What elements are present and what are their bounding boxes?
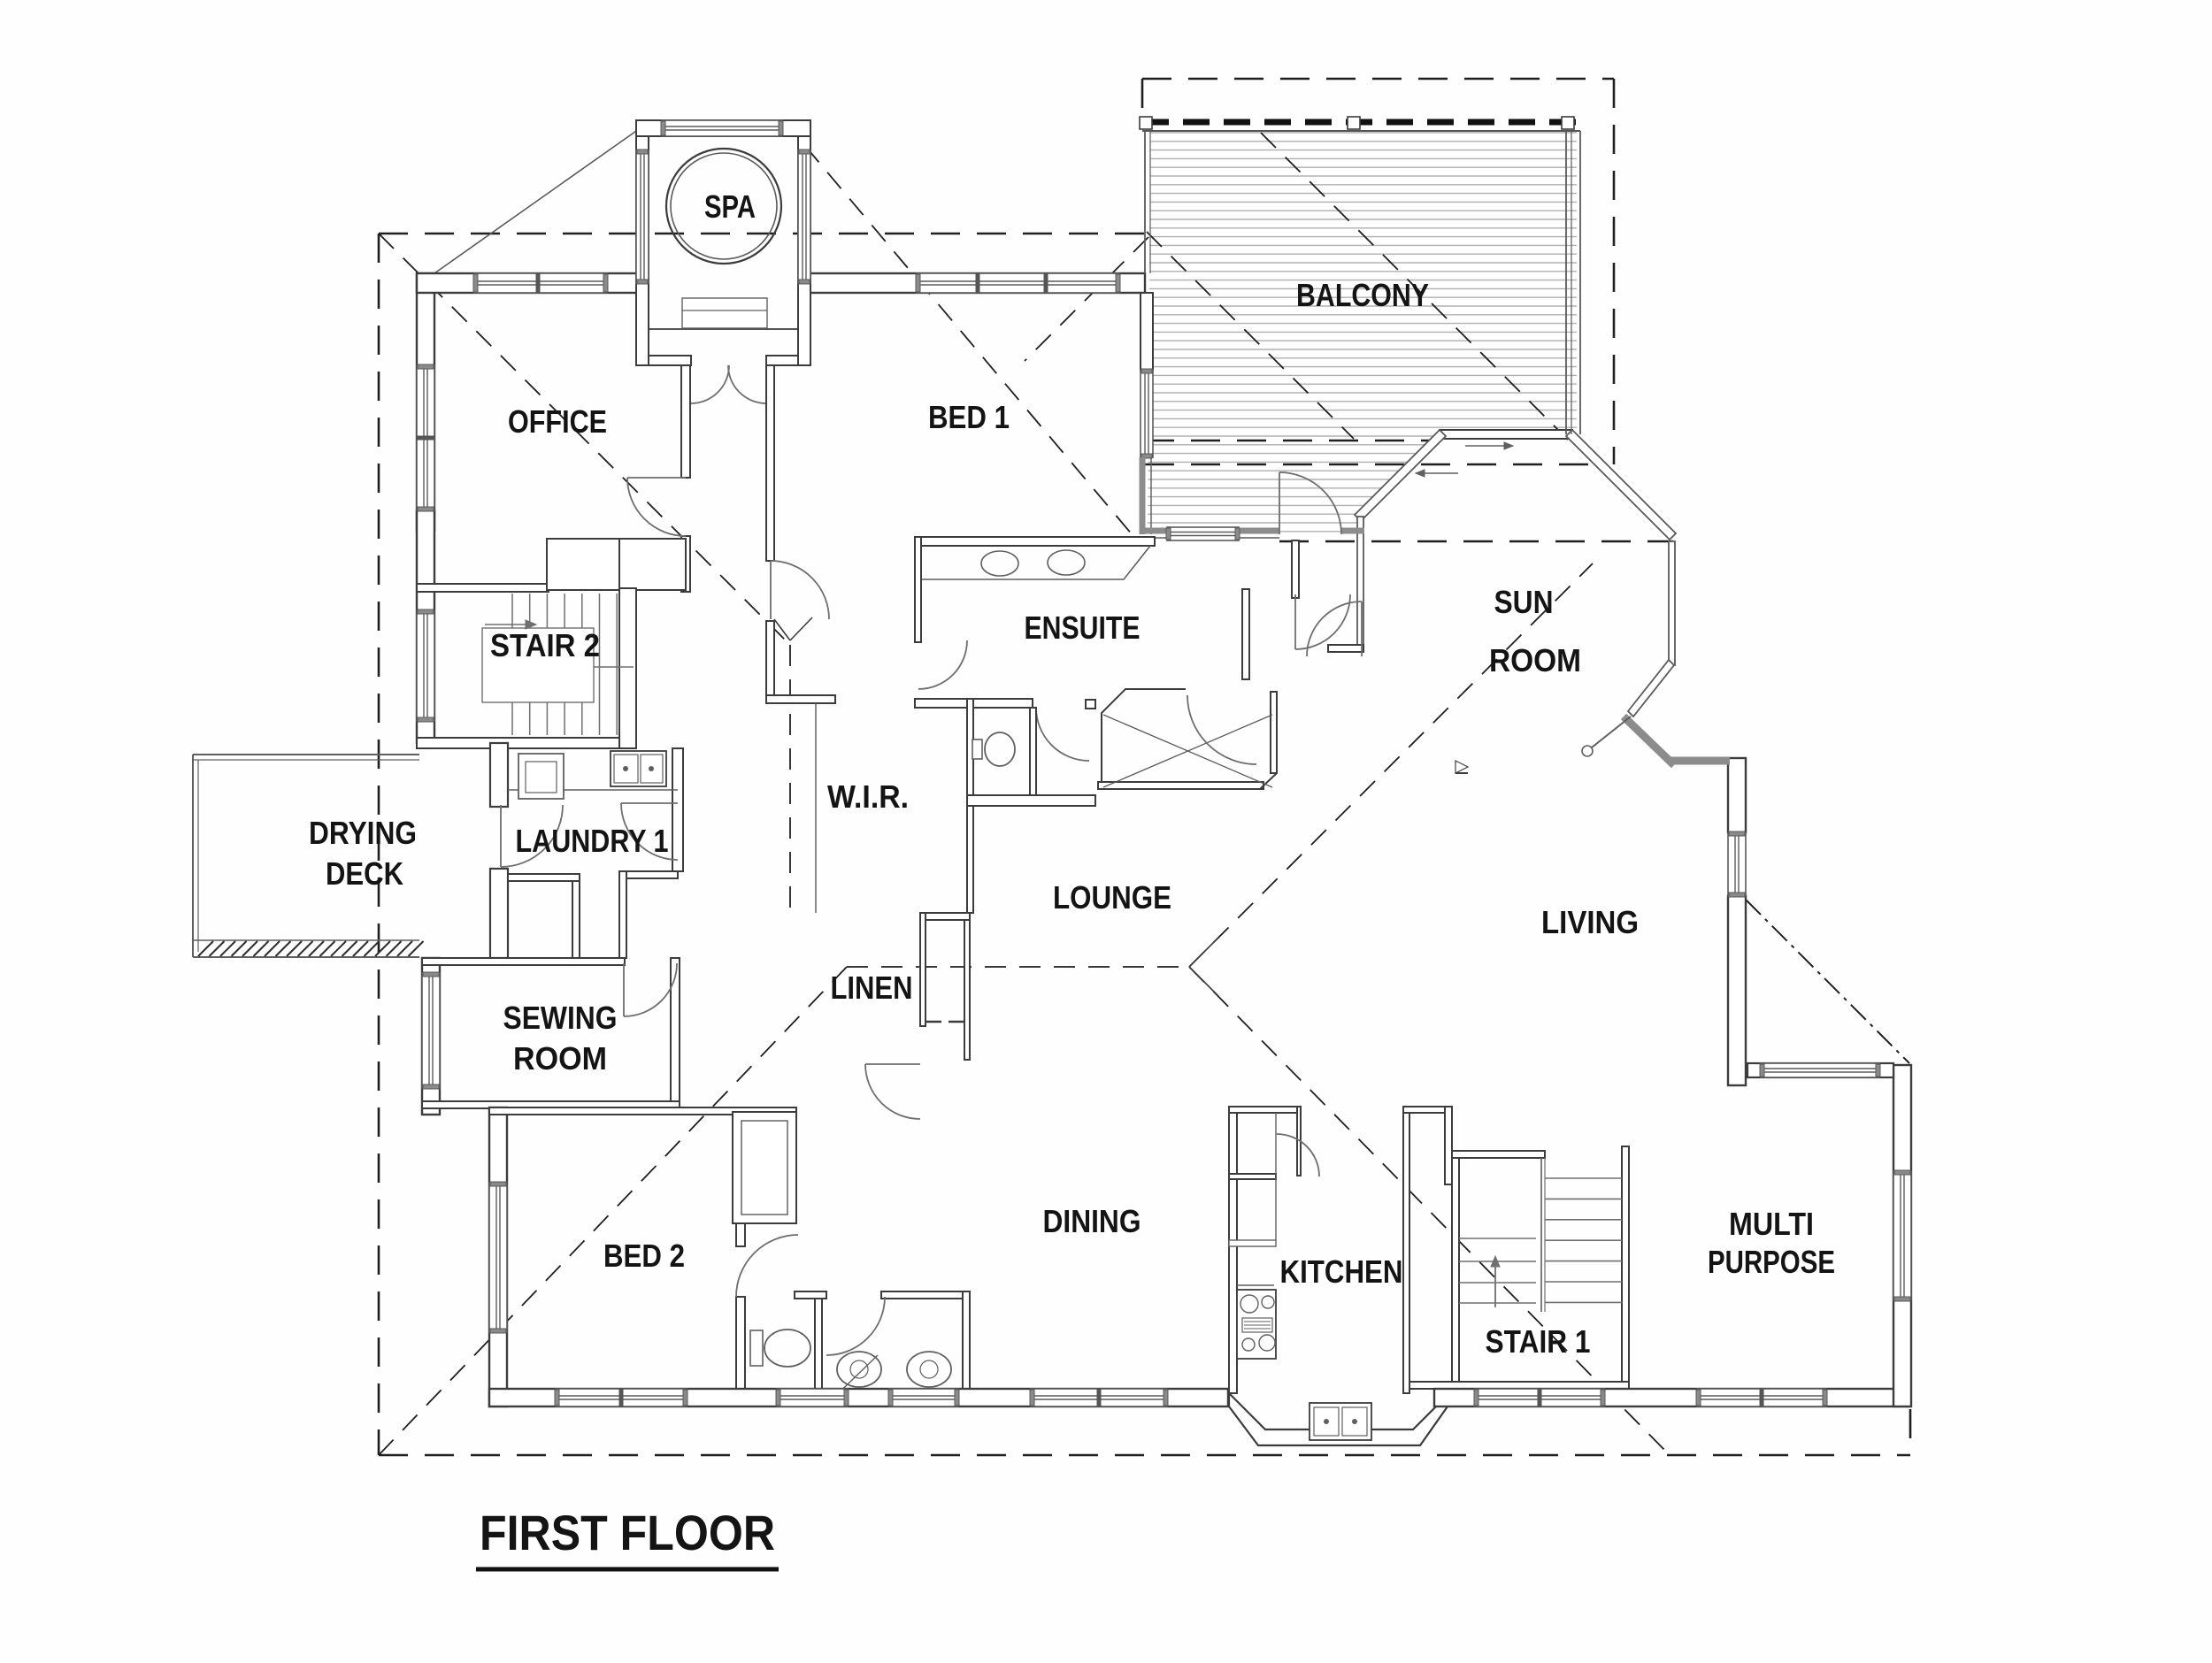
svg-text:LOUNGE: LOUNGE — [1053, 879, 1171, 916]
svg-text:W.I.R.: W.I.R. — [827, 778, 909, 815]
svg-text:MULTI: MULTI — [1729, 1206, 1814, 1242]
svg-text:BED 1: BED 1 — [928, 399, 1010, 435]
svg-text:SPA: SPA — [704, 188, 756, 225]
svg-text:ENSUITE: ENSUITE — [1025, 609, 1141, 646]
svg-text:KITCHEN: KITCHEN — [1280, 1253, 1403, 1290]
svg-text:LIVING: LIVING — [1541, 904, 1639, 940]
svg-text:DINING: DINING — [1043, 1203, 1141, 1239]
svg-text:DRYING: DRYING — [309, 815, 417, 851]
svg-text:LAUNDRY 1: LAUNDRY 1 — [516, 823, 669, 859]
svg-text:ROOM: ROOM — [513, 1040, 607, 1077]
svg-text:ROOM: ROOM — [1489, 642, 1581, 678]
svg-text:BALCONY: BALCONY — [1296, 277, 1429, 313]
svg-text:STAIR 1: STAIR 1 — [1486, 1323, 1591, 1360]
svg-text:STAIR 2: STAIR 2 — [490, 627, 600, 663]
svg-text:SEWING: SEWING — [503, 1000, 618, 1036]
svg-text:OFFICE: OFFICE — [508, 403, 607, 440]
svg-text:DECK: DECK — [326, 855, 403, 892]
svg-text:SUN: SUN — [1494, 584, 1554, 620]
svg-text:LINEN: LINEN — [831, 969, 913, 1006]
svg-text:PURPOSE: PURPOSE — [1708, 1244, 1835, 1280]
svg-text:FIRST FLOOR: FIRST FLOOR — [480, 1505, 775, 1560]
svg-text:BED 2: BED 2 — [603, 1238, 685, 1274]
